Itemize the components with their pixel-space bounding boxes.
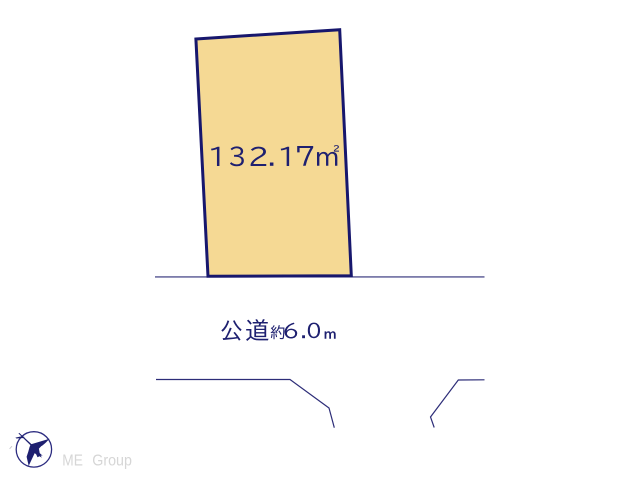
svg-text:ME: ME (62, 452, 83, 469)
svg-text:Group: Group (92, 452, 132, 469)
